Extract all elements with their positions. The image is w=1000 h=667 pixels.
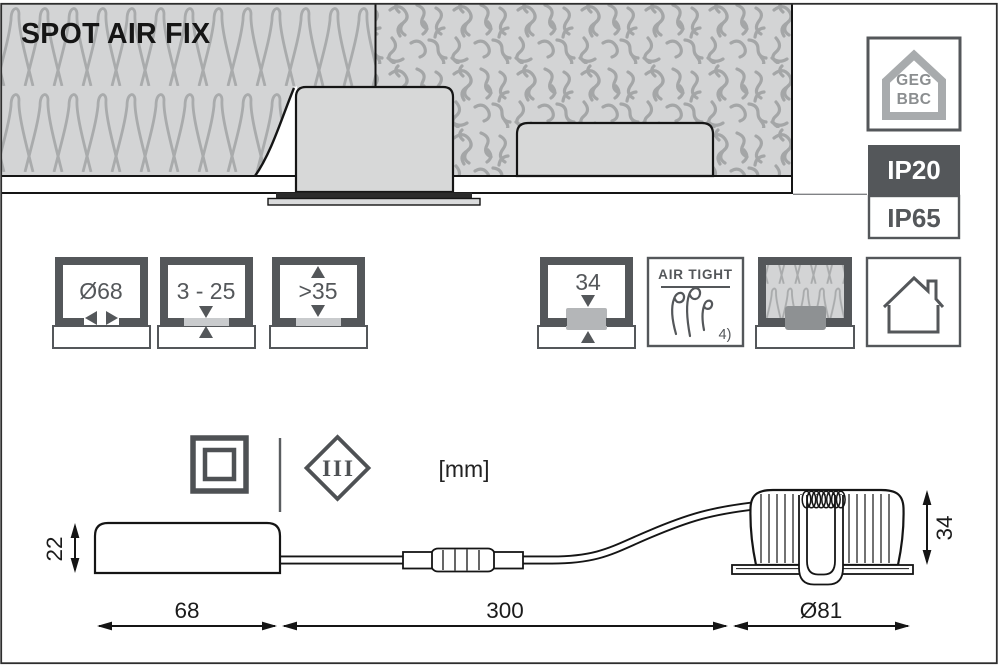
- ceiling-thickness-label: 3 - 25: [177, 278, 236, 304]
- arrow-left-icon: [85, 311, 97, 325]
- protection-class-3-label: III: [322, 456, 355, 481]
- spec-icon-row: Ø68 3 - 25 >35: [53, 257, 960, 348]
- driver-length-dim: 68: [174, 598, 199, 623]
- double-square-inner: [205, 450, 234, 479]
- page-title: SPOT AIR FIX: [21, 18, 210, 50]
- air-tight-label: AIR TIGHT: [658, 267, 733, 282]
- bbc-label: BBC: [897, 91, 932, 108]
- arrow-right-icon: [106, 311, 118, 325]
- clearance-above-icon: >35: [270, 257, 367, 348]
- recessed-spot-housing: [296, 87, 453, 192]
- insulation-contact-icon: [756, 257, 854, 348]
- geg-label: GEG: [896, 72, 932, 89]
- ip65-label: IP65: [887, 203, 941, 233]
- ip65-badge: IP65: [869, 196, 959, 238]
- cutout-diameter-icon: Ø68: [53, 257, 150, 348]
- driver-box-on-ceiling: [517, 123, 713, 176]
- certification-badges: GEG BBC IP20 IP65: [868, 38, 960, 238]
- ceiling-thickness-icon: 3 - 25: [158, 257, 255, 348]
- spot-diameter-dim: Ø81: [800, 598, 843, 623]
- arrow-down-icon: [311, 305, 325, 317]
- arrow-down-icon: [581, 295, 595, 307]
- dimension-drawing: 22 34 68 300 Ø81: [42, 490, 957, 630]
- covered-fixture-glyph: [785, 306, 826, 330]
- arrow-up-icon: [311, 266, 325, 278]
- driver-box: [95, 523, 280, 573]
- ip20-label: IP20: [887, 155, 941, 185]
- recess-height-icon: 34: [538, 257, 635, 348]
- spot-fixture: [732, 490, 913, 585]
- class-marks: III: [193, 437, 369, 512]
- recess-height-label: 34: [575, 269, 601, 295]
- cable-length-dim: 300: [486, 598, 524, 623]
- product-installation-diagram: SPOT AIR FIX GEG BBC IP20 IP65 Ø68: [0, 0, 1000, 667]
- arrow-down-icon: [199, 306, 213, 318]
- geg-bbc-badge: GEG BBC: [868, 38, 960, 130]
- spot-trim-flange: [268, 199, 480, 206]
- recessed-fixture-glyph: [566, 308, 607, 330]
- units-label: [mm]: [438, 456, 489, 482]
- air-tight-footnote: 4): [719, 327, 732, 343]
- spot-bezel: [276, 193, 472, 199]
- spot-height-dim: 34: [932, 515, 957, 540]
- clearance-above-label: >35: [298, 278, 337, 304]
- air-tight-icon: AIR TIGHT 4): [648, 258, 743, 346]
- cable-connector: [403, 549, 523, 572]
- driver-height-dim: 22: [42, 536, 67, 561]
- ip20-badge: IP20: [868, 145, 960, 195]
- cutout-diameter-label: Ø68: [79, 278, 122, 304]
- installation-cross-section: SPOT AIR FIX: [2, 4, 867, 205]
- indoor-use-icon: [867, 258, 960, 346]
